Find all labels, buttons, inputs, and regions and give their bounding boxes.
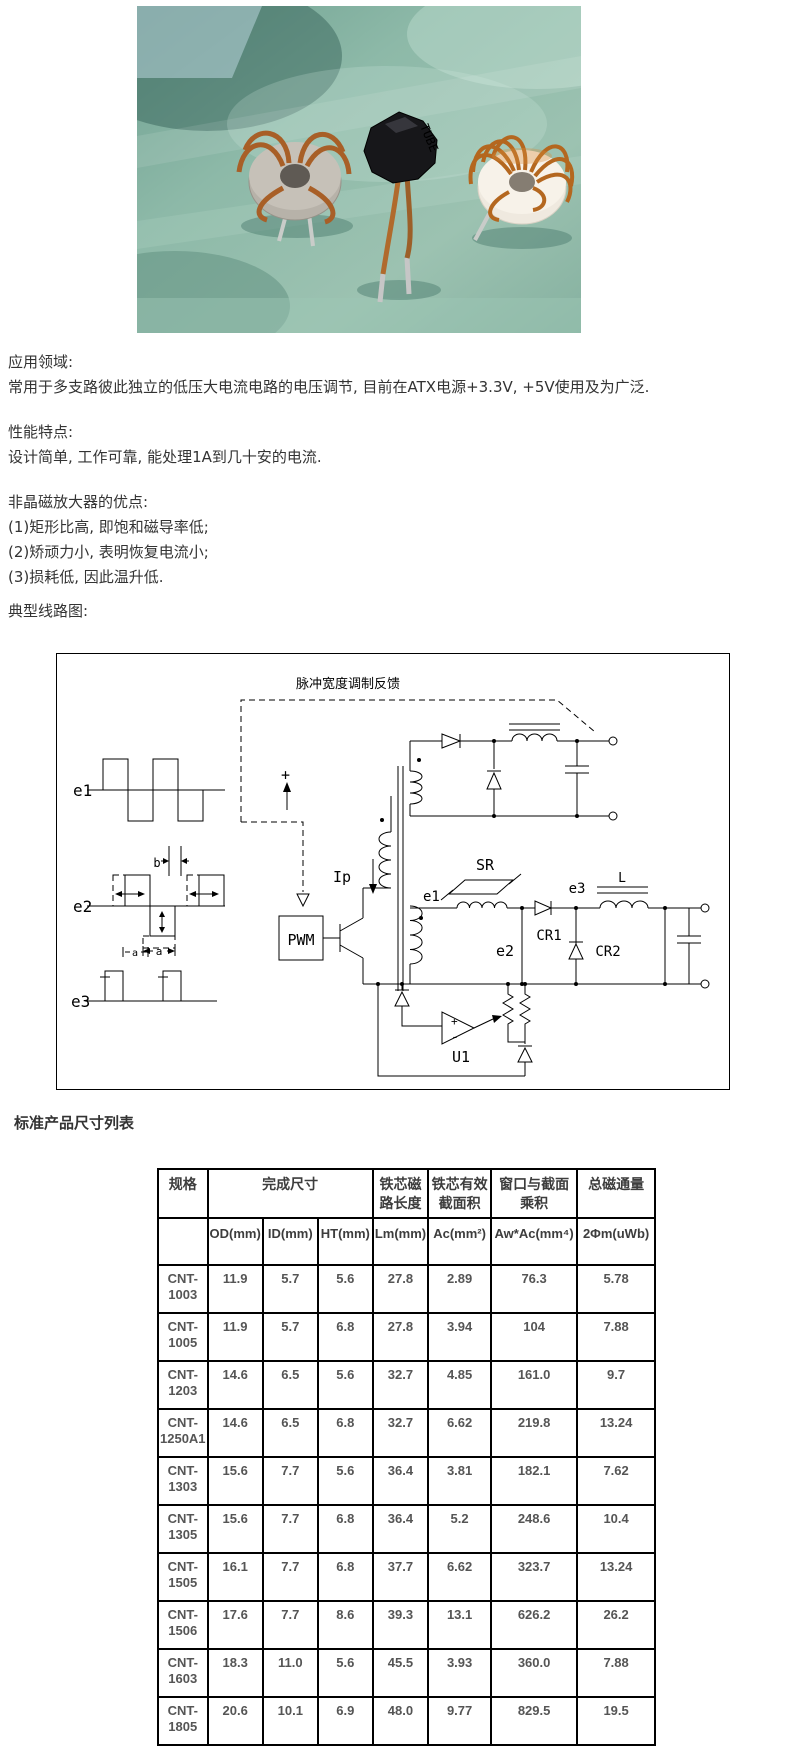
cell-flux: 13.24 [577,1409,655,1457]
cell-id: 5.7 [263,1265,318,1313]
cell-ht: 6.8 [318,1409,373,1457]
cell-awac: 76.3 [491,1265,577,1313]
col-header-path-length: 铁芯磁路长度 [373,1169,428,1218]
circuit-diagram: 脉冲宽度调制反馈 e1 e2 [56,653,730,1090]
cell-od: 11.9 [208,1313,263,1361]
cell-ac: 3.81 [428,1457,491,1505]
table-row: CNT-180520.610.16.948.09.77829.519.5 [158,1697,655,1745]
transformer [363,741,457,991]
cell-od: 18.3 [208,1649,263,1697]
cell-spec: CNT-1303 [158,1457,208,1505]
col-subheader-od: OD(mm) [208,1218,263,1265]
cell-spec: CNT-1250A1 [158,1409,208,1457]
arrowhead [369,884,377,894]
cell-spec: CNT-1305 [158,1505,208,1553]
table-row: CNT-120314.66.55.632.74.85161.09.7 [158,1361,655,1409]
cell-flux: 26.2 [577,1601,655,1649]
transistor [323,888,363,984]
dim-b-label: b [153,856,160,870]
section-heading-application: 应用领域: [8,351,73,372]
cell-ac: 3.93 [428,1649,491,1697]
section-line: (2)矫顽力小, 表明恢复电流小; [8,541,209,562]
col-subheader-flux: 2Φm(uWb) [577,1218,655,1265]
table-edge [137,298,581,333]
cell-ht: 5.6 [318,1457,373,1505]
cell-od: 14.6 [208,1361,263,1409]
reflection [357,280,441,300]
spec-table: 规格 完成尺寸 铁芯磁路长度 铁芯有效截面积 窗口与截面乘积 总磁通量 OD(m… [157,1168,656,1746]
coil-e2-label: e2 [496,942,514,960]
col-header-total-flux: 总磁通量 [577,1169,655,1218]
feedback-label: 脉冲宽度调制反馈 [296,676,400,692]
cell-ac: 9.77 [428,1697,491,1745]
col-header-spec: 规格 [158,1169,208,1218]
cell-ac: 6.62 [428,1553,491,1601]
table-row: CNT-100311.95.75.627.82.8976.35.78 [158,1265,655,1313]
pwm-label: PWM [287,931,314,949]
col-subheader-ht: HT(mm) [318,1218,373,1265]
cell-ht: 5.6 [318,1649,373,1697]
section-line: 设计简单, 工作可靠, 能处理1A到几十安的电流. [8,446,322,467]
table-title: 标准产品尺寸列表 [14,1112,134,1133]
cell-lm: 39.3 [373,1601,428,1649]
cell-ac: 6.62 [428,1409,491,1457]
cell-lm: 32.7 [373,1361,428,1409]
u1-plus: + [451,1015,458,1028]
pwm-block: PWM [279,916,323,960]
reflection [472,227,572,249]
section-heading-advantages: 非晶磁放大器的优点: [8,491,148,512]
section-line: (1)矩形比高, 即饱和磁导率低; [8,516,209,537]
cell-spec: CNT-1805 [158,1697,208,1745]
cell-ht: 6.8 [318,1553,373,1601]
waveform-e3: e3 a [71,947,217,1011]
waveform-e2: e2 a b [73,846,225,958]
cell-od: 16.1 [208,1553,263,1601]
col-subheader-ac: Ac(mm²) [428,1218,491,1265]
cell-flux: 10.4 [577,1505,655,1553]
cell-ac: 3.94 [428,1313,491,1361]
feedback-arrow [297,894,309,906]
waveform-e1: e1 [73,759,225,821]
cell-lm: 37.7 [373,1553,428,1601]
cell-spec: CNT-1506 [158,1601,208,1649]
cell-flux: 7.88 [577,1649,655,1697]
cell-lm: 36.4 [373,1457,428,1505]
col-header-finished-size: 完成尺寸 [208,1169,373,1218]
cell-ht: 5.6 [318,1265,373,1313]
cell-od: 17.6 [208,1601,263,1649]
cell-awac: 104 [491,1313,577,1361]
upper-output-circuit [410,724,617,820]
cell-flux: 7.62 [577,1457,655,1505]
cell-awac: 829.5 [491,1697,577,1745]
cell-id: 7.7 [263,1601,318,1649]
cell-ht: 6.8 [318,1505,373,1553]
cell-awac: 626.2 [491,1601,577,1649]
cell-ht: 6.8 [318,1313,373,1361]
cell-lm: 32.7 [373,1409,428,1457]
cell-ht: 8.6 [318,1601,373,1649]
cr1-label: CR1 [536,928,561,944]
section-heading-circuit: 典型线路图: [8,600,88,621]
cell-ac: 5.2 [428,1505,491,1553]
cell-id: 7.7 [263,1457,318,1505]
ip-label: Ip [333,868,351,886]
coil-e3-label: e3 [569,881,586,897]
cell-od: 14.6 [208,1409,263,1457]
col-subheader-id: ID(mm) [263,1218,318,1265]
cell-flux: 5.78 [577,1265,655,1313]
cell-spec: CNT-1603 [158,1649,208,1697]
cr2-label: CR2 [595,944,620,960]
cell-awac: 323.7 [491,1553,577,1601]
cell-ht: 6.9 [318,1697,373,1745]
table-row: CNT-160318.311.05.645.53.93360.07.88 [158,1649,655,1697]
cell-id: 7.7 [263,1505,318,1553]
cell-ac: 13.1 [428,1601,491,1649]
cell-id: 11.0 [263,1649,318,1697]
product-photo: TUBE [137,6,581,333]
cell-awac: 248.6 [491,1505,577,1553]
table-row: CNT-130315.67.75.636.43.81182.17.62 [158,1457,655,1505]
control-network: + - U1 [378,982,532,1076]
cell-flux: 13.24 [577,1553,655,1601]
cell-od: 11.9 [208,1265,263,1313]
col-header-core-area: 铁芯有效截面积 [428,1169,491,1218]
sr-label: SR [476,856,495,874]
spec-table-header: 规格 完成尺寸 铁芯磁路长度 铁芯有效截面积 窗口与截面乘积 总磁通量 OD(m… [158,1169,655,1265]
cell-id: 6.5 [263,1409,318,1457]
table-row: CNT-100511.95.76.827.83.941047.88 [158,1313,655,1361]
cell-awac: 360.0 [491,1649,577,1697]
cell-lm: 48.0 [373,1697,428,1745]
cell-ac: 2.89 [428,1265,491,1313]
cell-spec: CNT-1203 [158,1361,208,1409]
feedback-dashed-line [241,822,303,892]
cell-id: 10.1 [263,1697,318,1745]
col-header-window-area-product: 窗口与截面乘积 [491,1169,577,1218]
cell-lm: 27.8 [373,1265,428,1313]
cell-od: 15.6 [208,1457,263,1505]
cell-awac: 161.0 [491,1361,577,1409]
col-subheader-lm: Lm(mm) [373,1218,428,1265]
col-subheader-awac: Aw*Ac(mm⁴) [491,1218,577,1265]
cell-spec: CNT-1005 [158,1313,208,1361]
coil-e1-label: e1 [423,889,440,905]
cell-od: 20.6 [208,1697,263,1745]
u1-label: U1 [452,1048,470,1066]
cell-id: 7.7 [263,1553,318,1601]
page: TUBE [0,0,791,1747]
magamp-output-circuit: e1 SR e2 CR1 CR2 e3 L [363,856,709,988]
section-heading-features: 性能特点: [8,421,73,442]
l-label: L [618,871,626,886]
cell-ht: 5.6 [318,1361,373,1409]
section-line: (3)损耗低, 因此温升低. [8,566,164,587]
cell-awac: 182.1 [491,1457,577,1505]
primary-plus-label: + [281,766,290,784]
spec-table-body: CNT-100311.95.75.627.82.8976.35.78CNT-10… [158,1265,655,1745]
table-row: CNT-130515.67.76.836.45.2248.610.4 [158,1505,655,1553]
cell-lm: 45.5 [373,1649,428,1697]
cell-flux: 7.88 [577,1313,655,1361]
cell-od: 15.6 [208,1505,263,1553]
cell-id: 6.5 [263,1361,318,1409]
cell-id: 5.7 [263,1313,318,1361]
u1-minus: - [451,1030,459,1045]
cell-flux: 19.5 [577,1697,655,1745]
cell-lm: 36.4 [373,1505,428,1553]
dim-a2-label: a [132,948,138,959]
section-line: 常用于多支路彼此独立的低压大电流电路的电压调节, 目前在ATX电源+3.3V, … [8,376,649,397]
cell-lm: 27.8 [373,1313,428,1361]
table-row: CNT-1250A114.66.56.832.76.62219.813.24 [158,1409,655,1457]
product-photo-image: TUBE [137,6,581,333]
cell-spec: CNT-1505 [158,1553,208,1601]
cell-spec: CNT-1003 [158,1265,208,1313]
dim-a-label: a [156,945,163,958]
cell-flux: 9.7 [577,1361,655,1409]
table-row: CNT-150617.67.78.639.313.1626.226.2 [158,1601,655,1649]
table-row: CNT-150516.17.76.837.76.62323.713.24 [158,1553,655,1601]
cell-ac: 4.85 [428,1361,491,1409]
col-subheader-blank [158,1218,208,1265]
cell-awac: 219.8 [491,1409,577,1457]
